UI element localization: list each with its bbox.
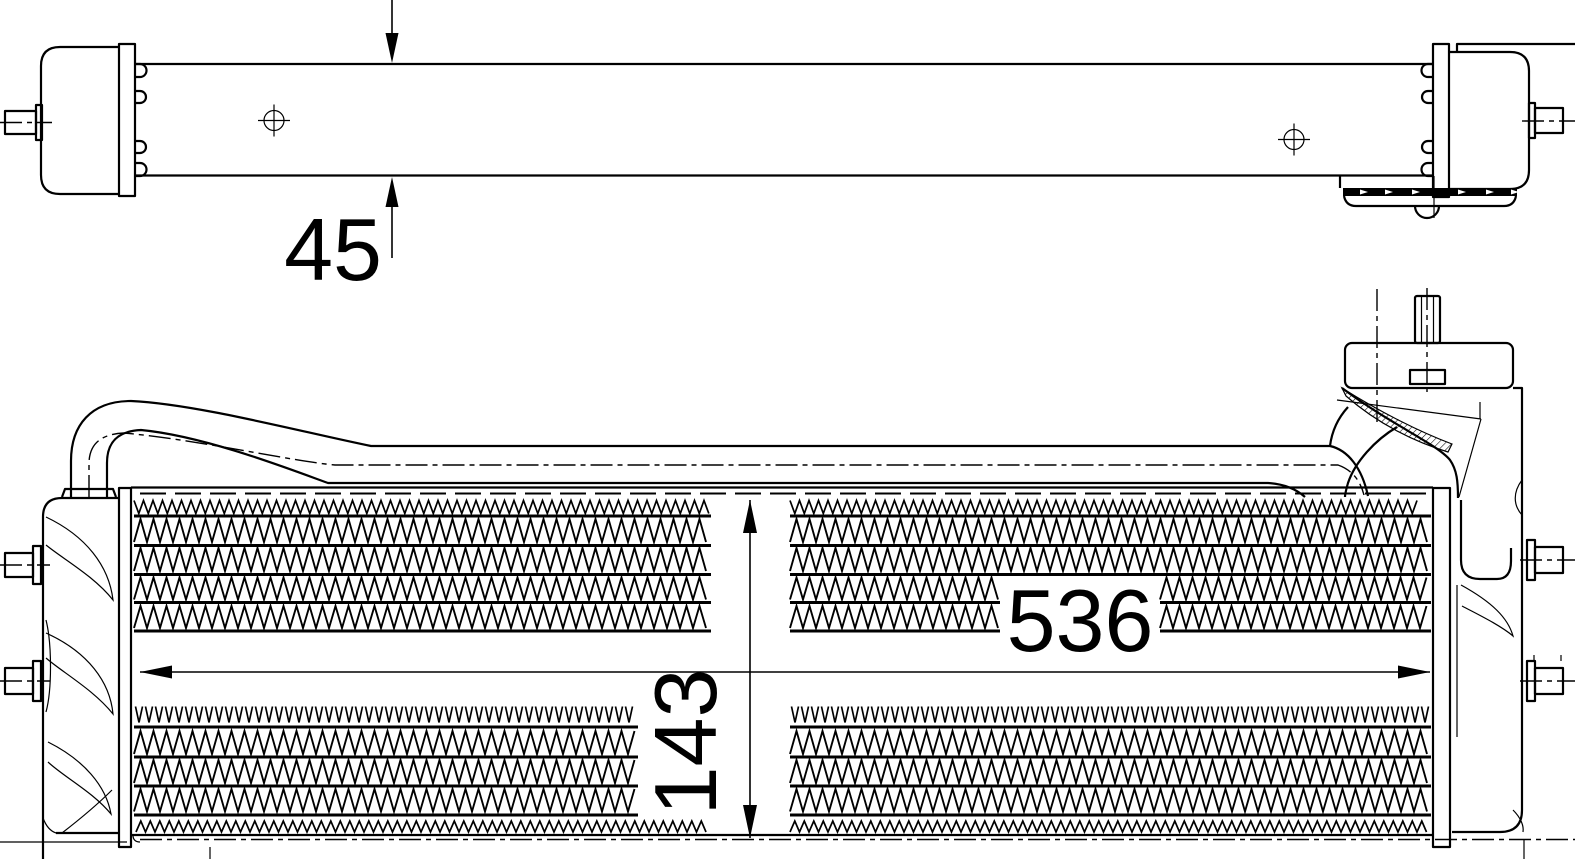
- top-fitting: [1345, 288, 1513, 424]
- front-right-tank: [1452, 388, 1524, 859]
- side-view-left-stub: [0, 105, 52, 140]
- fin-row: [134, 606, 706, 628]
- front-right-stub-lower: [1520, 655, 1575, 701]
- tank-rib-decoration: [46, 517, 113, 833]
- fin-row: [134, 548, 706, 571]
- arrow-up-icon: [743, 500, 757, 533]
- fin-row: [134, 760, 635, 783]
- side-view-right-stub: [1522, 103, 1575, 138]
- right-header-plate: [1433, 488, 1450, 847]
- hole-marker-right: [1278, 124, 1310, 156]
- fin-row: [790, 519, 1427, 542]
- fin-row: [790, 731, 1427, 754]
- hole-marker-left: [258, 105, 290, 137]
- fin-row: [136, 821, 706, 832]
- fin-row: [790, 760, 1427, 783]
- fin-row: [790, 789, 1427, 812]
- fin-row: [790, 548, 1427, 571]
- dimension-height: 143: [636, 500, 757, 838]
- fin-row: [790, 606, 998, 628]
- fin-row: [792, 707, 1429, 723]
- fin-row: [134, 501, 709, 514]
- fin-row: [790, 821, 1427, 832]
- arrow-left-icon: [140, 666, 172, 679]
- side-view-left-tank: [41, 44, 147, 196]
- arrow-down-icon: [743, 805, 757, 838]
- pipe-funnel-joint: [1330, 388, 1481, 498]
- dimension-thickness: 45: [284, 0, 398, 299]
- left-header-plate: [119, 488, 140, 847]
- oil-cooler-drawing: 45: [0, 0, 1575, 859]
- arrow-down-icon: [386, 33, 399, 63]
- dimension-height-label: 143: [636, 669, 735, 816]
- fin-row: [1160, 578, 1427, 600]
- fin-row: [134, 519, 706, 542]
- fin-row: [134, 731, 635, 754]
- fin-row: [1160, 606, 1427, 628]
- fin-row: [790, 501, 1417, 514]
- side-view: 45: [0, 0, 1575, 299]
- technical-drawing: 45: [0, 0, 1575, 859]
- core-fins: [134, 501, 1431, 833]
- side-view-body: [135, 64, 1433, 176]
- front-view: 536 143: [0, 288, 1575, 859]
- fin-row: [134, 578, 706, 600]
- arrow-up-icon: [386, 177, 399, 207]
- inlet-pipe: [62, 401, 1368, 497]
- front-right-stub-upper: [1520, 540, 1575, 580]
- dimension-thickness-label: 45: [284, 200, 382, 299]
- side-view-mounting-foot: [1340, 176, 1519, 219]
- fin-row: [134, 789, 635, 812]
- arrow-right-icon: [1398, 666, 1430, 679]
- fin-row: [790, 578, 998, 600]
- dimension-length-label: 536: [1007, 571, 1154, 670]
- fin-row: [136, 707, 633, 723]
